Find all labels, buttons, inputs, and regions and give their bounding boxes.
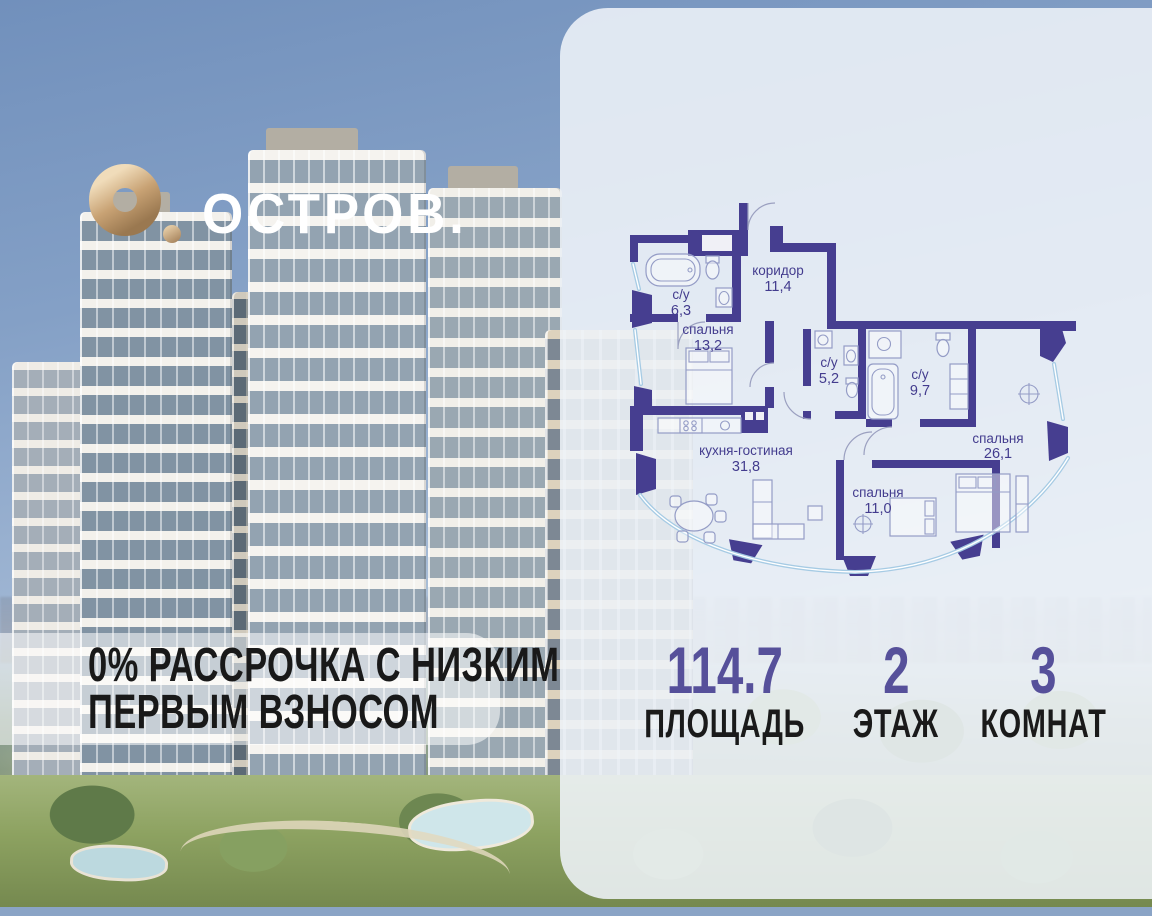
stat-rooms-value: 3 — [1030, 640, 1056, 700]
tower-roof — [266, 128, 358, 152]
stat-floor-label: ЭТАЖ — [853, 703, 939, 745]
stat-rooms: 3 КОМНАТ — [956, 640, 1131, 752]
stat-floor: 2 ЭТАЖ — [836, 640, 955, 752]
room-label: спальня — [682, 322, 733, 337]
room-area: 13,2 — [694, 338, 722, 354]
room-label: кухня-гостиная — [699, 443, 793, 458]
room-label: спальня — [972, 431, 1023, 446]
room-label: коридор — [752, 263, 804, 278]
room-area: 6,3 — [671, 303, 691, 319]
room-area: 26,1 — [984, 446, 1012, 462]
room-area: 5,2 — [819, 371, 839, 387]
room-label: с/у — [672, 287, 690, 302]
room-area: 11,4 — [764, 279, 791, 295]
room-label: с/у — [911, 367, 929, 382]
promo-line-1: 0% РАССРОЧКА С НИЗКИМ — [88, 642, 559, 689]
stat-floor-value: 2 — [883, 640, 909, 700]
room-area: 11,0 — [864, 501, 891, 517]
apartment-card: с/у 6,3 коридор 11,4 спальня 13,2 с/у 5,… — [560, 8, 1152, 899]
promo-line-2: ПЕРВЫМ ВЗНОСОМ — [88, 689, 559, 736]
room-area: 9,7 — [910, 383, 930, 399]
logo-wordmark: ОСТРОВ. — [202, 181, 468, 247]
room-label: спальня — [852, 485, 903, 500]
logo-gold-ring-icon — [88, 156, 188, 252]
floor-plan: с/у 6,3 коридор 11,4 спальня 13,2 с/у 5,… — [620, 190, 1092, 592]
room-area: 31,8 — [732, 459, 760, 475]
room-label: с/у — [820, 355, 838, 370]
promo-banner: 0% РАССРОЧКА С НИЗКИМ ПЕРВЫМ ВЗНОСОМ — [0, 633, 500, 745]
stat-rooms-label: КОМНАТ — [980, 703, 1106, 745]
